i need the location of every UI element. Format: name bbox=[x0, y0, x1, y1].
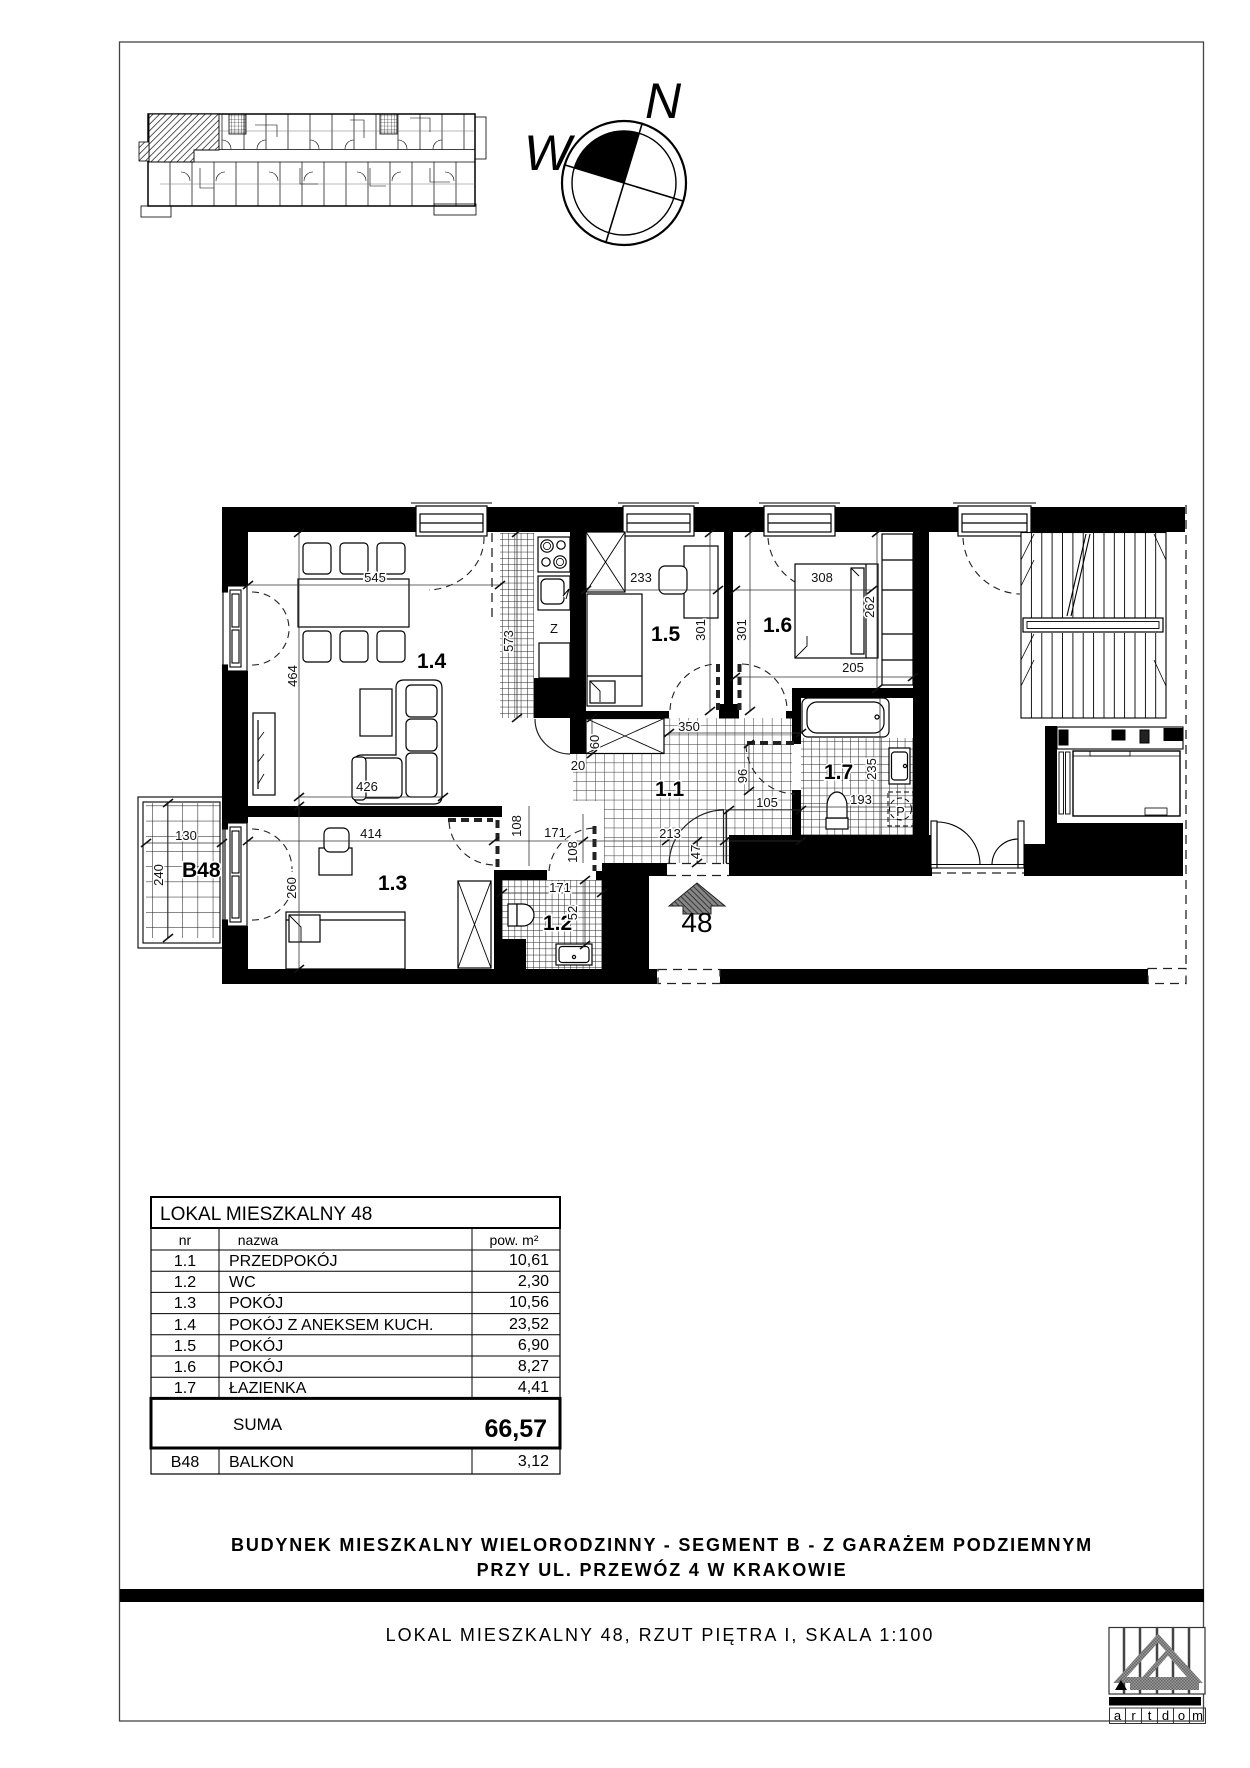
svg-text:301: 301 bbox=[734, 619, 749, 641]
svg-text:48: 48 bbox=[681, 907, 712, 938]
svg-text:308: 308 bbox=[811, 570, 833, 585]
svg-text:1.6: 1.6 bbox=[174, 1359, 196, 1376]
svg-text:3,12: 3,12 bbox=[518, 1453, 549, 1470]
svg-text:426: 426 bbox=[356, 779, 378, 794]
svg-text:1.7: 1.7 bbox=[824, 761, 853, 784]
svg-text:1.4: 1.4 bbox=[174, 1317, 196, 1334]
svg-text:1.5: 1.5 bbox=[174, 1338, 196, 1355]
svg-text:B48: B48 bbox=[171, 1454, 200, 1471]
svg-text:10,61: 10,61 bbox=[509, 1252, 549, 1269]
svg-text:301: 301 bbox=[693, 619, 708, 641]
svg-text:545: 545 bbox=[364, 570, 386, 585]
svg-text:POKÓJ Z ANEKSEM KUCH.: POKÓJ Z ANEKSEM KUCH. bbox=[229, 1315, 433, 1334]
svg-text:47: 47 bbox=[688, 845, 703, 859]
svg-text:BALKON: BALKON bbox=[229, 1454, 294, 1471]
svg-text:20: 20 bbox=[571, 758, 585, 773]
svg-text:1.1: 1.1 bbox=[655, 778, 685, 801]
svg-text:108: 108 bbox=[565, 841, 580, 863]
svg-text:213: 213 bbox=[659, 826, 681, 841]
svg-text:573: 573 bbox=[501, 630, 516, 652]
svg-text:1.4: 1.4 bbox=[417, 650, 447, 673]
svg-text:1.6: 1.6 bbox=[763, 614, 792, 637]
svg-text:m: m bbox=[1192, 1708, 1203, 1723]
svg-text:414: 414 bbox=[360, 826, 382, 841]
svg-text:PRZEDPOKÓJ: PRZEDPOKÓJ bbox=[229, 1251, 337, 1270]
svg-text:193: 193 bbox=[850, 792, 872, 807]
svg-text:UPS: UPS bbox=[1166, 733, 1180, 740]
svg-text:ŁAZIENKA: ŁAZIENKA bbox=[229, 1380, 307, 1397]
svg-text:W: W bbox=[524, 125, 576, 181]
svg-text:POKÓJ: POKÓJ bbox=[229, 1357, 283, 1376]
svg-text:B48: B48 bbox=[182, 859, 221, 882]
svg-text:1.2: 1.2 bbox=[174, 1274, 196, 1291]
svg-text:6,90: 6,90 bbox=[518, 1337, 549, 1354]
svg-text:235: 235 bbox=[864, 758, 879, 780]
svg-text:pow. m²: pow. m² bbox=[489, 1232, 538, 1248]
svg-text:233: 233 bbox=[630, 570, 652, 585]
svg-text:130: 130 bbox=[175, 828, 197, 843]
svg-text:108: 108 bbox=[509, 815, 524, 837]
svg-text:N: N bbox=[645, 73, 682, 129]
svg-text:Z: Z bbox=[550, 621, 558, 636]
svg-text:105: 105 bbox=[756, 795, 778, 810]
svg-text:BUDYNEK MIESZKALNY WIELORODZIN: BUDYNEK MIESZKALNY WIELORODZINNY - SEGME… bbox=[231, 1535, 1093, 1555]
svg-text:WC: WC bbox=[229, 1274, 256, 1291]
svg-text:171: 171 bbox=[549, 880, 571, 895]
svg-text:1.3: 1.3 bbox=[174, 1295, 196, 1312]
svg-text:d: d bbox=[1162, 1708, 1169, 1723]
svg-text:1.7: 1.7 bbox=[174, 1380, 196, 1397]
svg-text:262: 262 bbox=[862, 596, 877, 618]
svg-text:SUMA: SUMA bbox=[233, 1415, 283, 1434]
svg-text:LOKAL MIESZKALNY 48, RZUT PIĘT: LOKAL MIESZKALNY 48, RZUT PIĘTRA I, SKAL… bbox=[386, 1625, 935, 1645]
svg-text:66,57: 66,57 bbox=[484, 1415, 547, 1443]
svg-text:1.3: 1.3 bbox=[378, 872, 407, 895]
svg-text:PRZY UL. PRZEWÓZ 4 W KRAKOWIE: PRZY UL. PRZEWÓZ 4 W KRAKOWIE bbox=[477, 1559, 848, 1580]
svg-text:10,56: 10,56 bbox=[509, 1294, 549, 1311]
svg-text:350: 350 bbox=[678, 719, 700, 734]
svg-text:t: t bbox=[1148, 1708, 1152, 1723]
svg-text:P: P bbox=[896, 804, 905, 819]
svg-text:POKÓJ: POKÓJ bbox=[229, 1336, 283, 1355]
svg-text:POKÓJ: POKÓJ bbox=[229, 1293, 283, 1312]
svg-text:1.1: 1.1 bbox=[174, 1253, 196, 1270]
svg-text:4,41: 4,41 bbox=[518, 1379, 549, 1396]
svg-text:52: 52 bbox=[565, 906, 580, 920]
svg-text:a: a bbox=[1114, 1708, 1122, 1723]
svg-text:260: 260 bbox=[284, 877, 299, 899]
svg-text:r: r bbox=[1131, 1708, 1136, 1723]
svg-text:1.5: 1.5 bbox=[651, 623, 681, 646]
svg-text:o: o bbox=[1178, 1708, 1185, 1723]
svg-text:96: 96 bbox=[735, 769, 750, 783]
svg-text:464: 464 bbox=[285, 665, 300, 687]
svg-text:23,52: 23,52 bbox=[509, 1316, 549, 1333]
svg-text:nr: nr bbox=[179, 1232, 192, 1248]
svg-text:LOKAL MIESZKALNY 48: LOKAL MIESZKALNY 48 bbox=[160, 1204, 372, 1225]
svg-text:240: 240 bbox=[151, 864, 166, 886]
svg-text:171: 171 bbox=[544, 825, 566, 840]
svg-text:8,27: 8,27 bbox=[518, 1358, 549, 1375]
svg-text:60: 60 bbox=[587, 735, 602, 749]
svg-text:nazwa: nazwa bbox=[238, 1232, 279, 1248]
svg-text:2,30: 2,30 bbox=[518, 1273, 549, 1290]
svg-text:205: 205 bbox=[842, 660, 864, 675]
